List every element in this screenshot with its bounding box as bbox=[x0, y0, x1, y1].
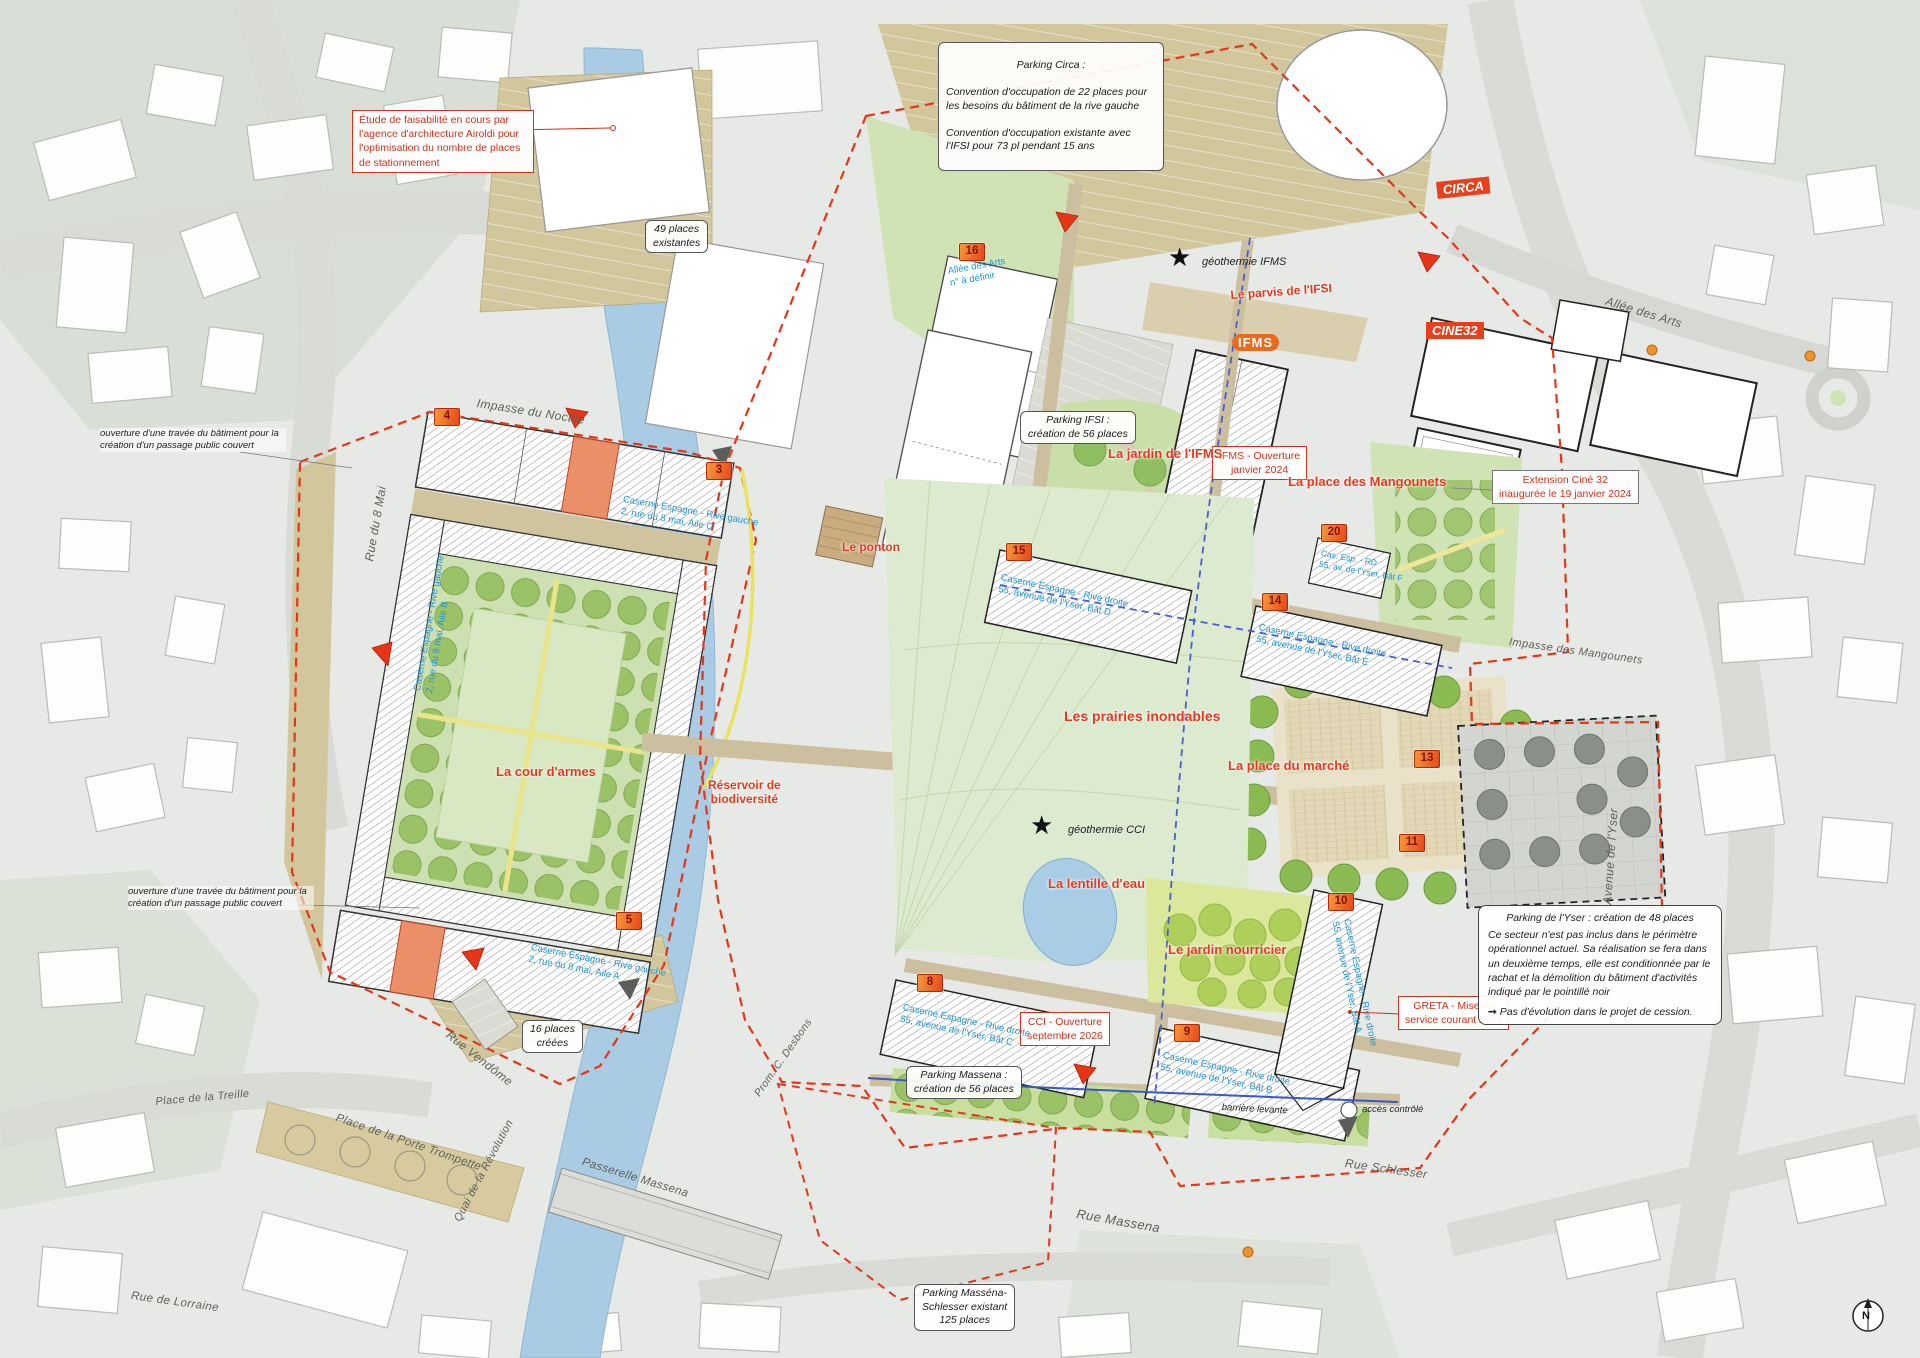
label-aile-a: Caserne Espagne - Rive gauche 2, rue du … bbox=[527, 942, 667, 992]
label-cour-armes: La cour d'armes bbox=[496, 764, 596, 779]
badge-ifms: IFMS bbox=[1232, 334, 1279, 351]
label-reservoir-biodiversite: Réservoir de biodiversité bbox=[708, 778, 781, 806]
label-building-16: Allée des Arts n° à définir bbox=[947, 256, 1008, 290]
street-avenue-yser: Avenue de l'Yser bbox=[1600, 808, 1621, 905]
marker-5: 5 bbox=[616, 912, 642, 930]
street-rue-massena: Rue Massena bbox=[1075, 1206, 1161, 1235]
label-jardin-ifms: La jardin de l'IFMS bbox=[1108, 446, 1222, 461]
labels-layer: Étude de faisabilité en cours par l'agen… bbox=[0, 0, 1920, 1358]
note-parking-circa-title: Parking Circa : bbox=[946, 59, 1156, 73]
street-allee-arts: Allée des Arts bbox=[1604, 294, 1684, 331]
marker-10: 10 bbox=[1328, 893, 1354, 911]
note-parking-circa-line1: Convention d'occupation de 22 places pou… bbox=[946, 86, 1156, 113]
note-parking-massena-schlesser: Parking Masséna- Schlesser existant 125 … bbox=[914, 1284, 1015, 1331]
note-cci-ouverture: CCI - Ouverture septembre 2026 bbox=[1020, 1012, 1110, 1046]
note-extension-cine32: Extension Ciné 32 inaugurée le 19 janvie… bbox=[1492, 470, 1639, 504]
label-place-marche: La place du marché bbox=[1228, 758, 1349, 773]
label-building-10: Caserne Espagne - Rive droite 55, avenue… bbox=[1328, 918, 1379, 1050]
street-prom-desbons: Prom. C. Desbons bbox=[752, 1016, 815, 1098]
label-lentille-eau: La lentille d'eau bbox=[1048, 876, 1145, 891]
note-parking-yser-title: Parking de l'Yser : création de 48 place… bbox=[1488, 911, 1712, 925]
street-passerelle-massena: Passerelle Massena bbox=[580, 1156, 689, 1200]
star-icon: ★ bbox=[1168, 244, 1191, 270]
note-49-places: 49 places existantes bbox=[645, 220, 708, 253]
note-barriere-levante: barrière levante bbox=[1221, 1102, 1288, 1117]
label-building-14: Caserne Espagne - Rive droite 55, avenue… bbox=[1255, 622, 1387, 673]
marker-11: 11 bbox=[1399, 834, 1425, 852]
street-rue-vendome: Rue Vendôme bbox=[443, 1028, 515, 1089]
note-parking-ifsi: Parking IFSI : création de 56 places bbox=[1020, 411, 1136, 444]
marker-16: 16 bbox=[959, 243, 985, 261]
marker-9: 9 bbox=[1174, 1024, 1200, 1042]
note-parking-massena: Parking Massena : création de 56 places bbox=[906, 1066, 1022, 1099]
note-16-places: 16 places créées bbox=[522, 1020, 583, 1053]
label-place-mangounets: La place des Mangounets bbox=[1288, 474, 1446, 489]
street-rue-schlesser: Rue Schlesser bbox=[1344, 1156, 1428, 1181]
label-geothermie-ifms: géothermie IFMS bbox=[1202, 256, 1286, 268]
note-acces-controle: accès contrôlé bbox=[1362, 1104, 1423, 1116]
masterplan-map: Étude de faisabilité en cours par l'agen… bbox=[0, 0, 1920, 1358]
marker-14: 14 bbox=[1262, 593, 1288, 611]
note-parking-yser-body: Ce secteur n'est pas inclus dans le péri… bbox=[1488, 928, 1712, 999]
street-quai-revolution: Quai de la Révolution bbox=[452, 1118, 516, 1224]
street-rue-8-mai: Rue du 8 Mai bbox=[362, 485, 389, 562]
marker-4: 4 bbox=[434, 408, 460, 426]
label-prairies-inondables: Les prairies inondables bbox=[1064, 708, 1220, 724]
note-ouverture-travee-1: ouverture d'une travée du bâtiment pour … bbox=[100, 428, 286, 452]
note-parking-yser-note-text: Pas d'évolution dans le projet de cessio… bbox=[1500, 1006, 1693, 1018]
marker-15: 15 bbox=[1006, 543, 1032, 561]
label-building-15: Caserne Espagne - Rive droite 55, avenue… bbox=[997, 572, 1129, 623]
marker-13: 13 bbox=[1414, 750, 1440, 768]
street-impasse-mangounets: Impasse des Mangounets bbox=[1508, 636, 1643, 667]
label-parvis-ifsi: Le parvis de l'IFSI bbox=[1230, 281, 1332, 302]
street-place-porte-trompette: Place de la Porte Trompette bbox=[334, 1112, 483, 1173]
note-parking-yser-note: ➞ Pas d'évolution dans le projet de cess… bbox=[1488, 1005, 1712, 1019]
label-geothermie-cci: géothermie CCI bbox=[1068, 824, 1145, 836]
note-parking-circa: Parking Circa : Convention d'occupation … bbox=[938, 42, 1164, 171]
marker-3: 3 bbox=[706, 462, 732, 480]
note-etude-faisabilite: Étude de faisabilité en cours par l'agen… bbox=[352, 110, 534, 173]
star-icon: ★ bbox=[1030, 812, 1053, 838]
marker-20: 20 bbox=[1321, 524, 1347, 542]
street-impasse-noctile: Impasse du Noctile bbox=[476, 396, 586, 427]
note-parking-circa-line2: Convention d'occupation existante avec l… bbox=[946, 127, 1156, 154]
label-aile-b: Caserne Espagne - Rive gauche 2, rue du … bbox=[412, 555, 460, 695]
label-building-8: Caserne Espagne - Rive droite 55, avenue… bbox=[899, 1002, 1031, 1053]
label-building-20: Cas. Esp. - RD 55, av. de l'Yser, Bât F bbox=[1318, 548, 1405, 584]
label-ponton: Le ponton bbox=[842, 540, 900, 554]
street-place-treille: Place de la Treille bbox=[155, 1088, 250, 1108]
street-rue-lorraine: Rue de Lorraine bbox=[130, 1290, 219, 1314]
badge-cine32: CINE32 bbox=[1426, 322, 1484, 339]
label-aile-c: Caserne Espagne - Rive gauche 2, rue du … bbox=[620, 494, 760, 542]
arrow-right-icon: ➞ bbox=[1488, 1006, 1497, 1018]
label-jardin-nourricier: Le jardin nourricier bbox=[1168, 942, 1286, 957]
note-ouverture-travee-2: ouverture d'une travée du bâtiment pour … bbox=[128, 886, 314, 910]
marker-8: 8 bbox=[917, 974, 943, 992]
label-building-9: Caserne Espagne - Rive droite 55, avenue… bbox=[1159, 1050, 1291, 1101]
north-letter: N bbox=[1862, 1310, 1870, 1322]
note-parking-yser: Parking de l'Yser : création de 48 place… bbox=[1478, 905, 1722, 1025]
badge-circa: CIRCA bbox=[1436, 176, 1491, 198]
